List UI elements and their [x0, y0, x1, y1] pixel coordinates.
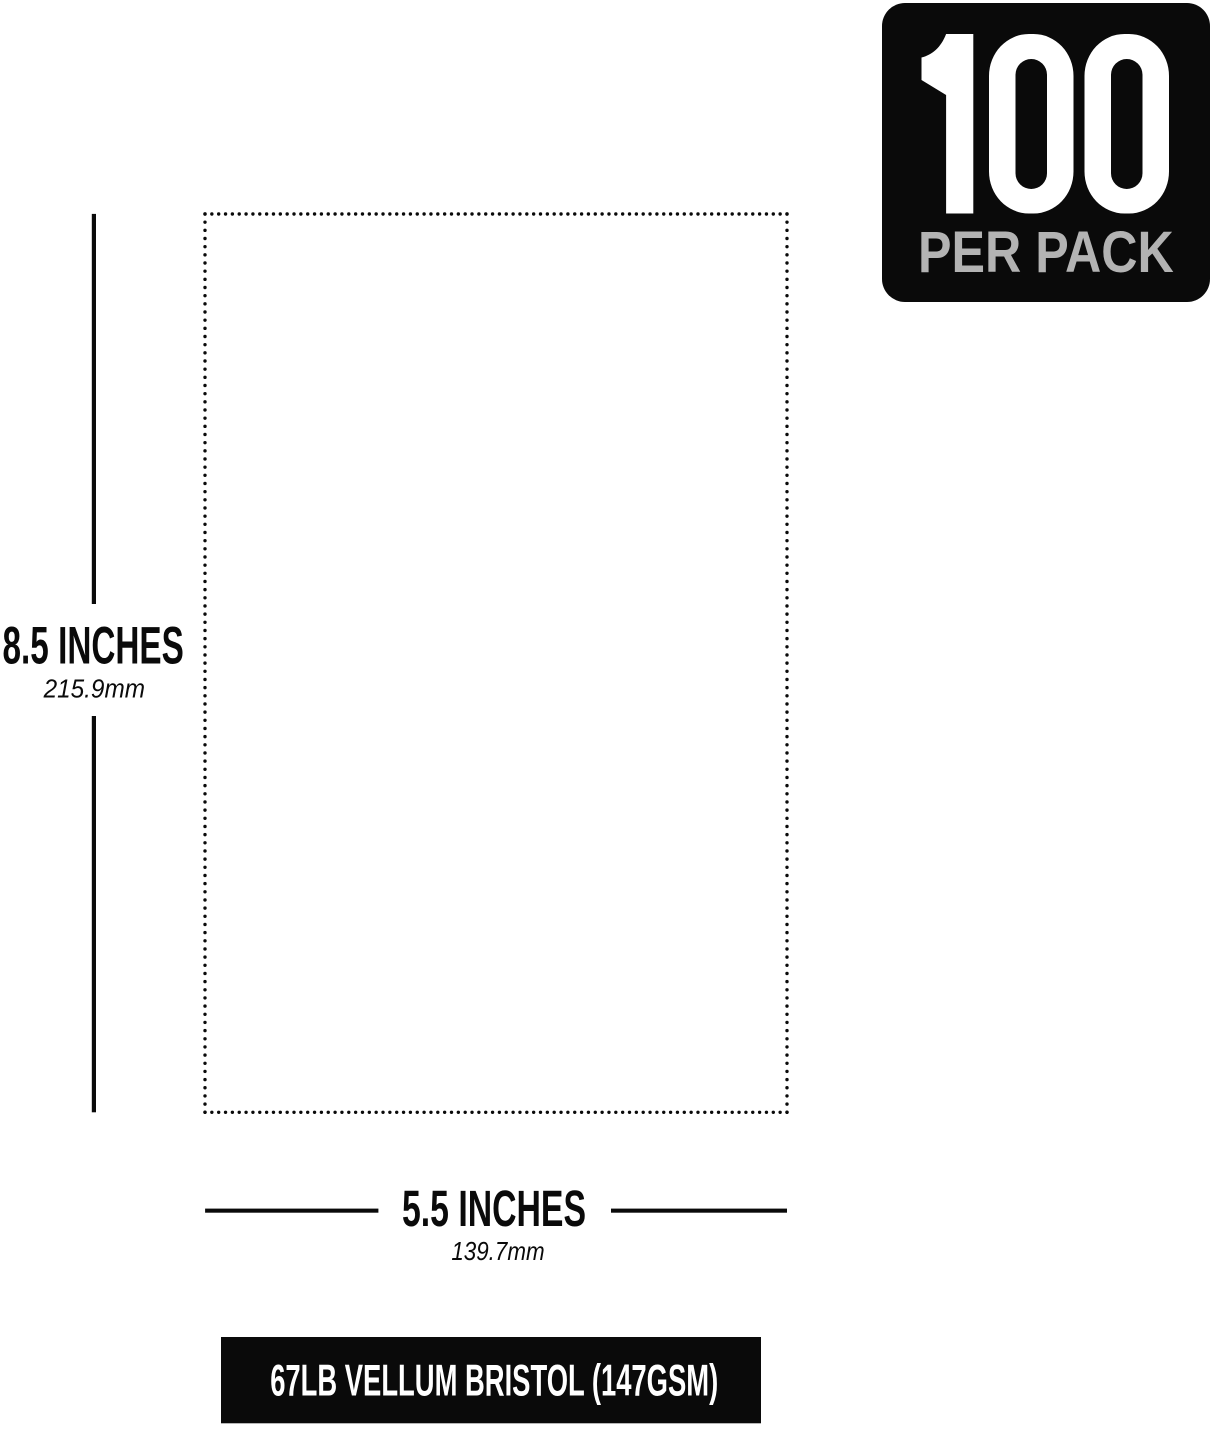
svg-text:8.5 INCHES: 8.5 INCHES	[3, 617, 184, 676]
svg-text:PER PACK: PER PACK	[918, 220, 1174, 285]
svg-text:67LB VELLUM BRISTOL (147GSM): 67LB VELLUM BRISTOL (147GSM)	[270, 1356, 718, 1405]
svg-text:139.7mm: 139.7mm	[451, 1236, 544, 1266]
svg-text:5.5 INCHES: 5.5 INCHES	[402, 1180, 586, 1237]
svg-text:215.9mm: 215.9mm	[43, 673, 145, 703]
